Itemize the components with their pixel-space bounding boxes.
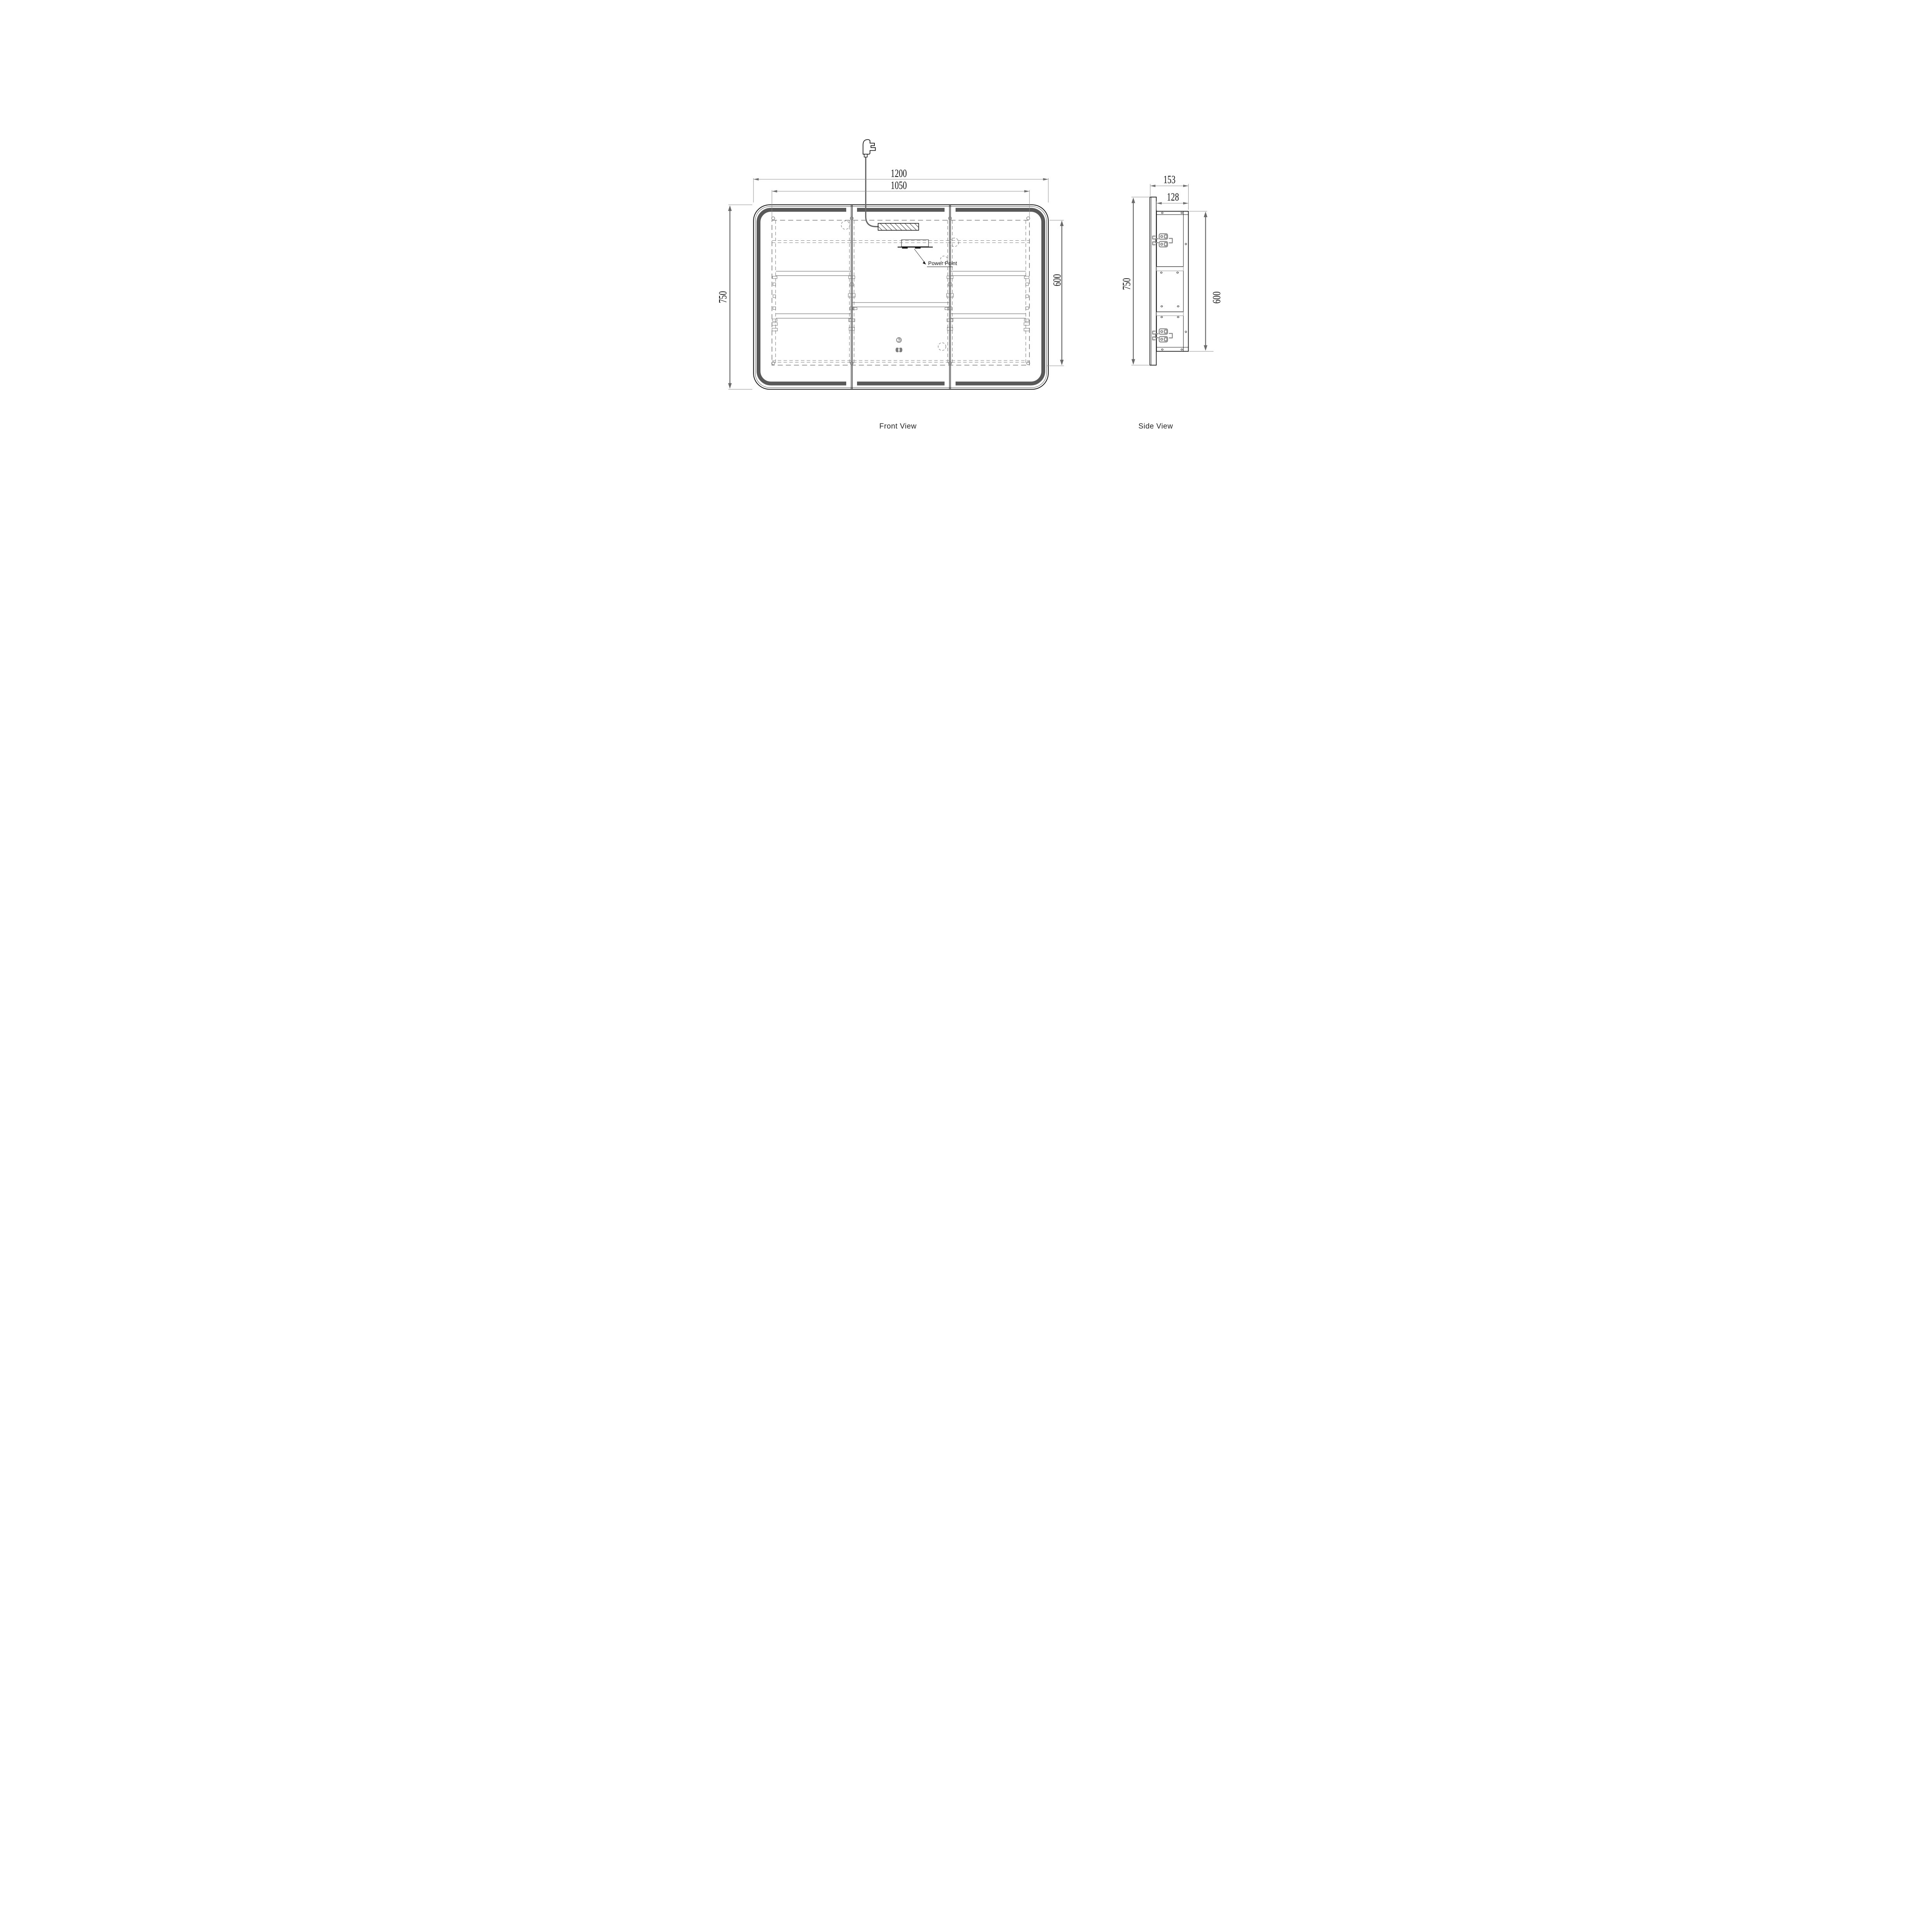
shelves — [772, 271, 1029, 331]
mounting-hole-circles — [772, 217, 1030, 365]
front-view-label: Front View — [879, 422, 917, 430]
defogger-icon — [896, 348, 903, 352]
leader-line — [914, 249, 924, 262]
front-view: Power Point 1200 — [717, 139, 1064, 430]
screws — [1160, 212, 1187, 350]
knockout-circles — [841, 221, 959, 351]
cabinet-outline — [753, 205, 1048, 389]
dim-body-height-value: 600 — [1051, 274, 1063, 286]
side-view-label: Side View — [1138, 422, 1173, 430]
side-shelves — [1156, 267, 1184, 316]
leader-arrowhead — [923, 261, 926, 265]
dim-600-side: 600 — [1189, 211, 1223, 352]
power-plug-icon — [863, 139, 878, 226]
touch-controls — [896, 338, 903, 352]
dim-body-width-value: 1050 — [891, 179, 907, 192]
led-strip-band — [759, 210, 1043, 384]
led-strip-middle-door — [857, 210, 945, 384]
cabinet-body-side — [1153, 211, 1189, 352]
power-button-icon — [896, 338, 901, 342]
right-door-shelves — [951, 271, 1026, 318]
dim-height-value: 750 — [717, 291, 729, 303]
dim-750-side: 750 — [1121, 197, 1149, 365]
power-point-hatch — [878, 223, 919, 230]
cabinet-body-dashed — [772, 217, 1030, 365]
shelf-clips — [772, 276, 1029, 331]
led-strip-right-door — [956, 210, 1043, 384]
hinge-icon-bottom — [1153, 329, 1172, 342]
power-point-label: Power Point — [928, 260, 957, 266]
dim-body-depth-value: 128 — [1167, 191, 1179, 203]
dim-depth-value: 153 — [1163, 173, 1175, 186]
mirror-cabinet-technical-drawing: Power Point 1200 — [676, 0, 1256, 580]
drawing-page: Power Point 1200 — [676, 0, 1256, 580]
dim-width-value: 1200 — [891, 167, 907, 180]
dim-side-body-height-value: 600 — [1211, 291, 1223, 303]
dim-side-height-value: 750 — [1121, 278, 1133, 290]
dim-128: 128 — [1156, 191, 1189, 210]
side-view: 153 128 750 600 Side View — [1121, 173, 1223, 430]
left-door-shelves — [776, 271, 851, 318]
power-cord — [866, 157, 878, 227]
power-point-callout: Power Point — [878, 223, 957, 267]
dim-600-front: 600 — [1046, 220, 1064, 366]
hinge-icon-top — [1153, 234, 1172, 247]
middle-door-shelf — [852, 303, 949, 307]
led-driver-box — [898, 240, 933, 249]
dim-750-front: 750 — [717, 205, 752, 389]
